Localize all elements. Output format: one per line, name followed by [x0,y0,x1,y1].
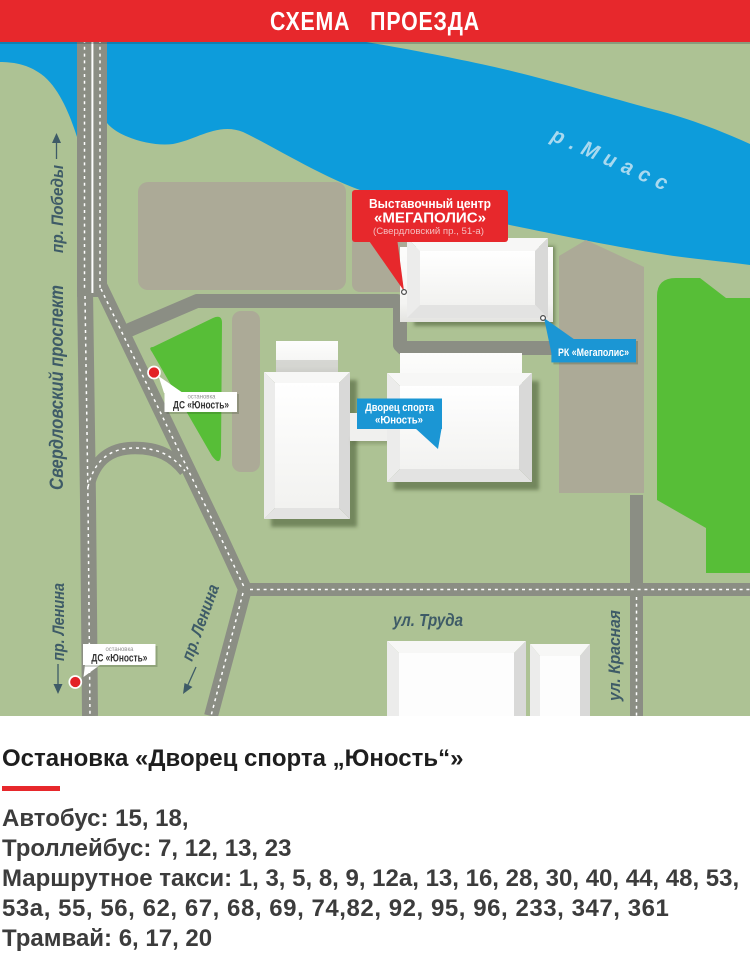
svg-text:пр. Победы: пр. Победы [48,165,67,253]
svg-text:Выставочный центр: Выставочный центр [369,197,491,211]
svg-text:РК «Мегаполис»: РК «Мегаполис» [558,347,629,359]
svg-text:ул. Красная: ул. Красная [606,610,624,702]
svg-text:Дворец спорта: Дворец спорта [365,402,435,414]
svg-text:«Юность»: «Юность» [375,415,423,427]
svg-text:«МЕГАПОЛИС»: «МЕГАПОЛИС» [374,211,486,227]
svg-text:ДС «Юность»: ДС «Юность» [173,400,229,412]
svg-text:(Свердловский пр., 51-а): (Свердловский пр., 51-а) [373,226,484,237]
svg-text:ДС «Юность»: ДС «Юность» [91,652,147,664]
svg-text:ул. Труда: ул. Труда [392,610,463,630]
svg-text:Свердловский проспект: Свердловский проспект [46,285,68,490]
svg-text:пр. Ленина: пр. Ленина [49,583,68,661]
